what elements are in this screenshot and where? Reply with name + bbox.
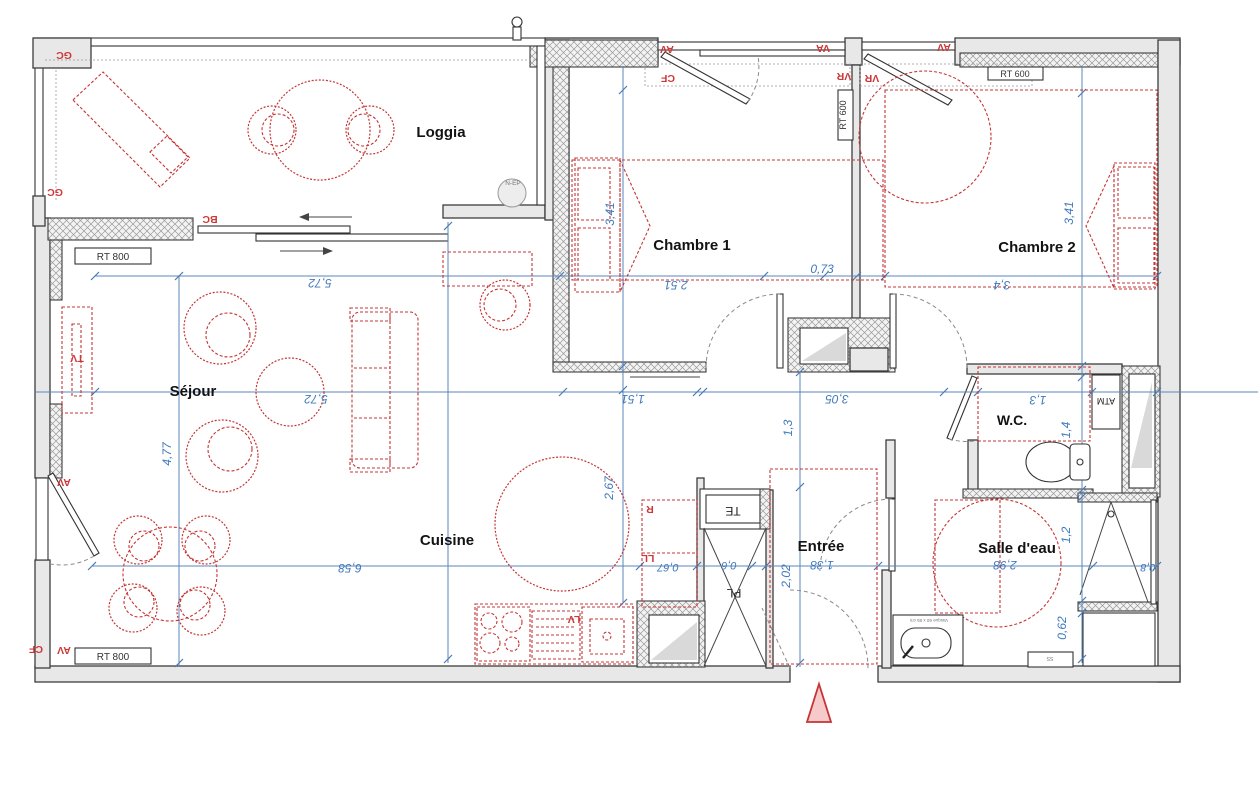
dim-sejour-top: 5,72	[308, 276, 332, 290]
tag-ll: LL	[641, 552, 654, 564]
dim-ch2-width: 3,4	[993, 278, 1010, 292]
wc-bottom-wall	[963, 489, 1093, 498]
sliding-door-panel-1	[198, 226, 350, 233]
entry-arrow-icon	[807, 684, 831, 722]
tag-av-2: AV	[937, 41, 951, 53]
sejour-sideboard	[443, 252, 532, 286]
dining-chair-3-seat	[124, 587, 154, 617]
sdb-door-leaf	[889, 499, 895, 571]
dining-chair-4	[177, 587, 225, 635]
loggia-chair-right-seat	[348, 114, 380, 146]
sliding-door-panel-2	[256, 234, 448, 241]
tag-atm: ATM	[1097, 396, 1115, 406]
dining-table	[123, 527, 217, 621]
entry-door-swing	[790, 590, 868, 668]
dim-wc-width: 1,3	[1029, 393, 1046, 407]
room-label-entree: Entrée	[798, 538, 845, 555]
dimension-ticks	[88, 86, 1161, 667]
tag-av-left: AV	[57, 476, 71, 488]
room-label-wc: W.C.	[997, 412, 1027, 428]
room-label-chambre1: Chambre 1	[653, 237, 731, 254]
burner-4	[505, 637, 519, 651]
dim-sejour-mid: 5,72	[304, 392, 328, 406]
dim-fridge: 0,67	[656, 561, 678, 573]
wc-door-leaf	[947, 376, 977, 440]
ch2-door-leaf	[890, 294, 896, 368]
ch2-door-swing	[893, 294, 967, 368]
dim-wc-height: 1,4	[1059, 421, 1073, 438]
burner-3	[480, 633, 500, 653]
dim-sdb-12: 1,2	[1059, 526, 1073, 543]
ch1-bed-fold	[620, 160, 650, 292]
ch1-pillow-2	[578, 228, 610, 280]
sejour-pouf	[480, 280, 530, 330]
window-sejour-swing	[50, 556, 94, 565]
dining-chair-2-seat	[185, 531, 215, 561]
dim-hall-305: 3,05	[825, 392, 849, 406]
tag-cf-top: CF	[660, 72, 675, 84]
loggia-right-rail	[537, 46, 545, 205]
tag-vasque: Vasque 60 x 55 cm	[910, 618, 948, 623]
tag-vr-2: VR	[864, 72, 879, 84]
top-wall-insulation	[960, 53, 1158, 67]
tag-bc: BC	[202, 213, 218, 225]
toilet-hinge	[1077, 459, 1083, 465]
tag-vr-1: VR	[836, 70, 851, 82]
dim-sdb-062: 0,62	[1055, 616, 1069, 640]
window-sejour-frame	[36, 478, 48, 560]
room-label-salle-eau: Salle d'eau	[978, 540, 1056, 557]
tag-av-bottom: AV	[57, 644, 71, 656]
armchair-1	[184, 292, 256, 364]
armchair-2-seat	[208, 427, 252, 471]
room-label-chambre2: Chambre 2	[998, 239, 1076, 256]
dim-pl: 0,6	[720, 559, 736, 571]
sofa-armrest-top	[350, 308, 390, 321]
loggia-table	[270, 80, 370, 180]
loggia-chair-left-seat	[262, 114, 294, 146]
bottom-wall-left	[35, 666, 790, 682]
shower-door-1	[1080, 502, 1111, 595]
tag-av-1: AV	[660, 43, 674, 55]
sdb-left-wall-lower	[882, 570, 891, 668]
left-wall-upper	[35, 218, 50, 478]
sofa	[352, 312, 418, 468]
dim-sejour-height: 4,77	[160, 441, 174, 466]
te-box-side	[760, 489, 770, 529]
tag-lv: LV	[568, 613, 581, 625]
wc-top-wall	[967, 364, 1122, 374]
armchair-2	[186, 420, 258, 492]
ch1-zone	[572, 160, 883, 280]
window-ch1-swing	[748, 56, 759, 102]
ch1-left-insulated-wall	[553, 67, 569, 367]
ch1-top-insulated-wall	[530, 40, 658, 67]
floor-plan-drawing: Loggia Chambre 1 Chambre 2 Séjour Cuisin…	[0, 0, 1260, 800]
tag-gc-2: GC	[47, 186, 63, 198]
ch2-pillow-1	[1118, 167, 1154, 218]
toilet-bowl	[1026, 442, 1076, 482]
dining-chair-1-seat	[129, 531, 159, 561]
top-wall-mullion	[845, 38, 862, 65]
tag-rt800-bottom: RT 800	[97, 652, 130, 663]
dim-hall-13: 1,3	[781, 419, 795, 436]
bottom-wall-right	[878, 666, 1180, 682]
loggia-lounger-foot	[150, 136, 188, 173]
tag-fridge: R	[646, 503, 654, 515]
dining-chair-4-seat	[180, 590, 210, 620]
tag-rt600-ch2: RT 600	[1000, 69, 1029, 79]
kitchen-counter	[475, 604, 633, 664]
sink-basin	[590, 619, 624, 654]
tag-te: TE	[725, 504, 740, 518]
room-label-cuisine: Cuisine	[420, 532, 474, 549]
left-wall-insulation-2	[50, 404, 62, 478]
tag-nep: N-EP	[505, 180, 521, 187]
shower-door-2	[1111, 502, 1148, 602]
central-shaft-box	[850, 348, 888, 371]
tag-rt800-top: RT 800	[97, 252, 130, 263]
armchair-1-seat	[206, 313, 250, 357]
loggia-lounger	[73, 72, 190, 187]
ch1-door-leaf	[777, 294, 783, 368]
ch2-zone	[885, 90, 1157, 287]
floor-plan-page: Loggia Chambre 1 Chambre 2 Séjour Cuisin…	[0, 0, 1260, 800]
washer-recess	[1083, 613, 1155, 666]
rain-pipe-stem	[513, 27, 521, 40]
sink-drain	[603, 632, 611, 640]
loggia-left-rail	[35, 46, 43, 210]
room-label-sejour: Séjour	[170, 383, 217, 400]
dim-entree-height: 2,02	[779, 564, 793, 589]
tag-cf-bottom: CF	[28, 643, 43, 655]
shower-right-edge	[1151, 500, 1156, 604]
walls	[35, 38, 1180, 682]
dim-entree-width: 1,38	[810, 558, 834, 572]
labels: Loggia Chambre 1 Chambre 2 Séjour Cuisin…	[28, 41, 1155, 663]
shower-drain	[1108, 511, 1114, 517]
tag-ss: SS	[1046, 655, 1053, 661]
ch2-pillow-2	[1118, 228, 1154, 283]
tag-rt600-vertical: RT 600	[838, 100, 848, 129]
dim-shower: 0,8	[1139, 561, 1155, 573]
shower-top-edge	[1078, 493, 1157, 502]
slide-arrow-right-head	[323, 247, 333, 255]
dim-ch2-height: 3,41	[1062, 201, 1076, 224]
slide-arrow-left-head	[299, 213, 309, 221]
window-sejour-casement	[48, 473, 99, 556]
ch1-bottom-wall	[553, 362, 706, 372]
ch2-bed	[1114, 163, 1155, 289]
dim-hall-151: 1,51	[621, 392, 644, 406]
dim-ch1-width: 2,51	[664, 278, 688, 292]
dim-ch1-height: 3,41	[603, 202, 617, 225]
rain-pipe-icon	[512, 17, 522, 27]
loggia-top-rail	[35, 38, 545, 46]
tag-gc-1: GC	[56, 49, 72, 61]
sejour-top-wall	[48, 218, 193, 240]
shower-bottom-edge	[1078, 602, 1157, 611]
right-wall	[1158, 40, 1180, 682]
loggia-chair-left	[248, 106, 296, 154]
loggia-bottom-right-wall	[443, 205, 545, 218]
sejour-pouf-seat	[484, 289, 516, 321]
room-label-loggia: Loggia	[416, 124, 466, 141]
burner-1	[481, 613, 497, 629]
vanity-drain	[922, 639, 930, 647]
dim-cuisine-width: 6,58	[338, 561, 362, 575]
tag-pl: PL	[726, 586, 741, 600]
tag-va: VA	[816, 42, 830, 54]
ch1-door-swing	[706, 294, 780, 368]
dim-cuisine-267: 2,67	[602, 475, 616, 501]
loggia-corner-block-2	[33, 196, 45, 226]
sofa-armrest-bottom	[350, 459, 390, 472]
sdb-left-wall-upper	[886, 440, 895, 498]
burner-2	[502, 612, 522, 632]
tag-tv: TV	[70, 352, 83, 364]
dim-sdb-width: 2,98	[993, 558, 1018, 572]
ch2-bed-fold	[1086, 166, 1114, 288]
dim-073: 0,73	[810, 262, 834, 276]
